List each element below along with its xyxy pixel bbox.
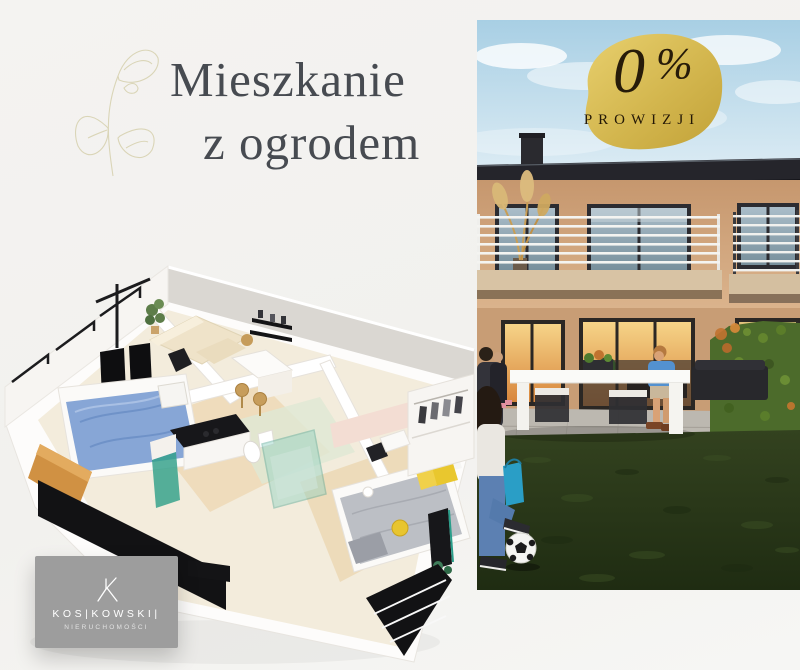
- child: [493, 352, 503, 362]
- balcony-window-right: [737, 203, 799, 269]
- commission-badge: 0 % PROWIZJI: [560, 28, 726, 156]
- badge-amount: 0: [594, 36, 664, 106]
- agency-name: KOS|KOWSKI|: [52, 608, 160, 620]
- bucket: [503, 462, 524, 506]
- leaf-sketch-icon: [58, 30, 163, 180]
- yellow-chair: [392, 520, 408, 536]
- headline-line2: z ogrodem: [203, 118, 420, 167]
- glass-partition: [152, 452, 180, 508]
- logo-monogram-icon: [90, 574, 124, 604]
- badge-percent: %: [656, 42, 693, 86]
- badge-label: PROWIZJI: [572, 112, 712, 129]
- agency-logo-card: KOS|KOWSKI| NIERUCHOMOŚCI: [35, 556, 178, 648]
- woman: [479, 347, 493, 361]
- headline-line1: Mieszkanie: [170, 55, 406, 104]
- agency-subtitle: NIERUCHOMOŚCI: [64, 624, 149, 631]
- ad-canvas: Mieszkanie z ogrodem: [0, 0, 800, 670]
- balcony-slab: [477, 270, 800, 303]
